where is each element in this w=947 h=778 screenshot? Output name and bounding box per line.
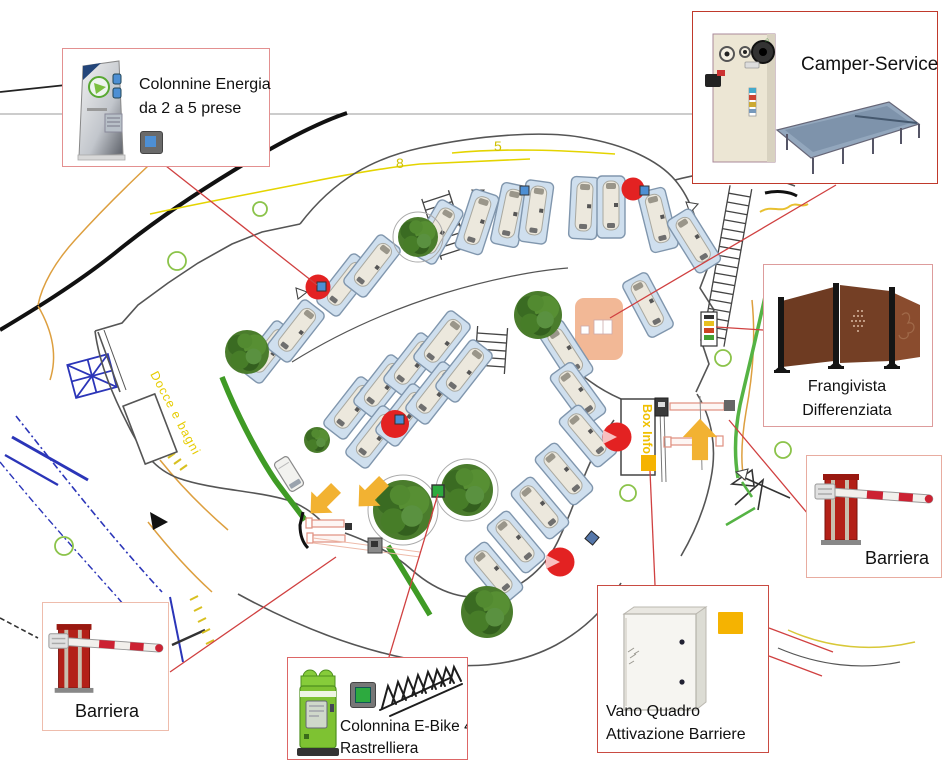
callout-barriera-right: Barriera	[806, 455, 942, 578]
vano-label-line1: Vano Quadro	[606, 700, 746, 723]
camper-spot	[597, 176, 625, 238]
frangivista-label-line2: Differenziata	[764, 399, 930, 423]
ebike-column-image	[292, 664, 346, 758]
ebike-legend-icon	[350, 682, 376, 708]
leader-stub	[769, 656, 822, 676]
energia-marker	[395, 415, 404, 424]
route-label-8: 8	[396, 155, 404, 171]
callout-vano-quadro: Vano Quadro Attivazione Barriere	[597, 585, 769, 753]
barriera-left-label: Barriera	[75, 701, 139, 722]
callout-barriera-left: Barriera	[42, 602, 169, 731]
barriera-right-label: Barriera	[865, 548, 929, 569]
slope-hatches	[162, 447, 214, 644]
tree-icon	[304, 427, 330, 453]
tree-icon	[441, 464, 493, 516]
svg-text:⌂: ⌂	[765, 37, 769, 44]
energia-marker	[520, 186, 529, 195]
camper-spot	[568, 176, 599, 239]
vano-legend-icon	[718, 612, 743, 634]
camper-spots	[238, 176, 722, 606]
site-plan-page: { "callouts": { "energia": {"line1": "Co…	[0, 0, 947, 778]
callout-ebike: Colonnina E-Bike 4p Rastrelliera	[287, 657, 468, 760]
leader-barriera-left	[170, 557, 336, 672]
map-line	[0, 85, 66, 92]
tree-icon	[461, 586, 513, 638]
energia-marker	[585, 531, 599, 545]
energia-marker	[317, 282, 326, 291]
energia-marker	[640, 186, 649, 195]
entrance-arrow	[300, 477, 347, 524]
ebike-label-line1: Colonnina E-Bike 4p	[340, 718, 468, 736]
map-line	[765, 192, 797, 196]
barrier-image	[45, 615, 167, 697]
recycle-point	[701, 312, 717, 346]
frangivista-label-line1: Frangivista	[764, 375, 930, 399]
camper-spot	[621, 271, 675, 339]
tree-icon	[398, 217, 438, 257]
ebike-label-line2: Rastrelliera	[340, 740, 418, 758]
frangivista-image	[774, 275, 924, 375]
box-info-label: Box Info	[640, 404, 654, 454]
energia-label-line2: da 2 a 5 prese	[139, 97, 271, 121]
electrical-cabinet-image	[612, 598, 716, 716]
bike-rack-image	[376, 660, 466, 718]
energia-label-line1: Colonnine Energia	[139, 73, 271, 97]
camper-spot	[454, 188, 500, 256]
callout-frangivista: Frangivista Differenziata	[763, 264, 933, 427]
vano-marker	[641, 455, 656, 471]
barrier-image	[811, 466, 937, 548]
callout-camper-service: ⌂ Camper-Service	[692, 11, 938, 184]
service-platform-image	[767, 96, 933, 182]
leader-vano	[650, 471, 655, 585]
vano-label-line2: Attivazione Barriere	[606, 723, 746, 746]
tree-icon	[514, 291, 562, 339]
camper-service-label: Camper-Service	[801, 54, 938, 76]
tree-icon	[225, 330, 269, 374]
route-label-5: 5	[494, 138, 502, 154]
energia-legend-icon	[140, 131, 163, 154]
callout-energia: Colonnine Energia da 2 a 5 prese	[62, 48, 270, 167]
energy-column-image	[71, 54, 133, 162]
